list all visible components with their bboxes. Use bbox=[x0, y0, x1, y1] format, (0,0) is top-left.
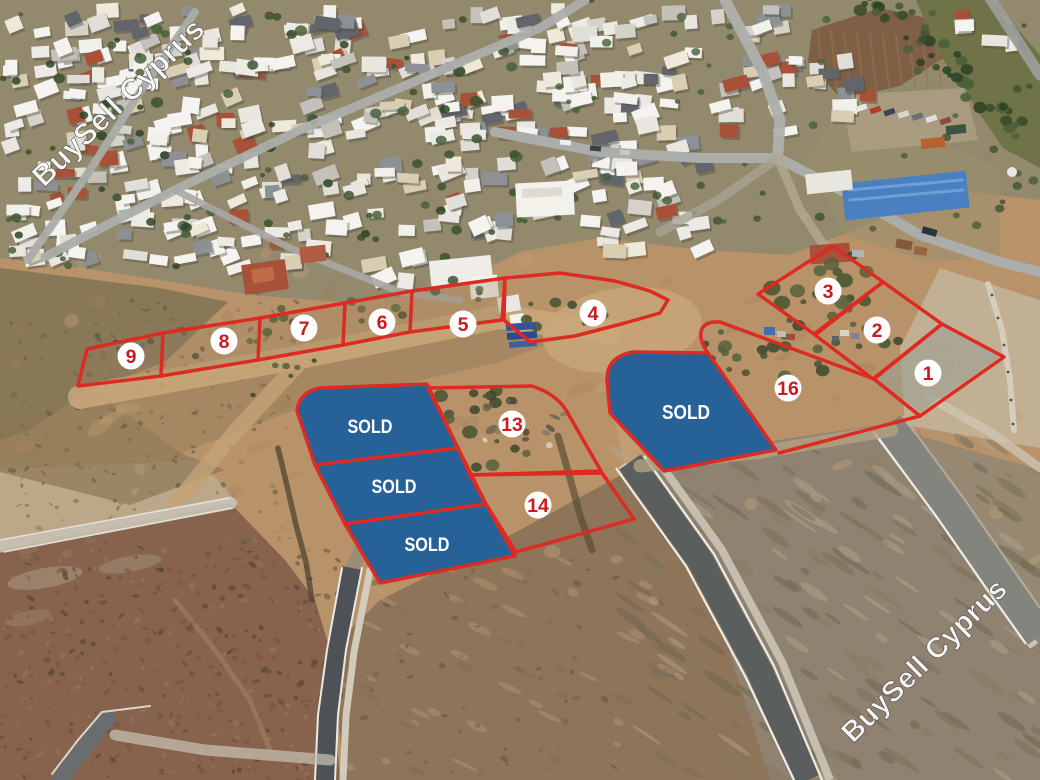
svg-text:4: 4 bbox=[588, 303, 599, 325]
svg-text:SOLD: SOLD bbox=[405, 535, 450, 556]
svg-text:9: 9 bbox=[126, 346, 137, 368]
svg-text:5: 5 bbox=[458, 314, 469, 336]
svg-text:2: 2 bbox=[872, 320, 883, 342]
svg-text:SOLD: SOLD bbox=[662, 402, 710, 424]
svg-text:14: 14 bbox=[527, 495, 549, 517]
svg-text:16: 16 bbox=[777, 378, 799, 400]
svg-text:SOLD: SOLD bbox=[372, 477, 417, 498]
svg-text:6: 6 bbox=[377, 312, 388, 334]
svg-text:SOLD: SOLD bbox=[348, 417, 393, 438]
svg-text:1: 1 bbox=[923, 363, 934, 385]
svg-text:13: 13 bbox=[501, 414, 523, 436]
svg-text:3: 3 bbox=[823, 281, 834, 303]
svg-text:7: 7 bbox=[299, 318, 310, 340]
svg-text:8: 8 bbox=[219, 331, 230, 353]
